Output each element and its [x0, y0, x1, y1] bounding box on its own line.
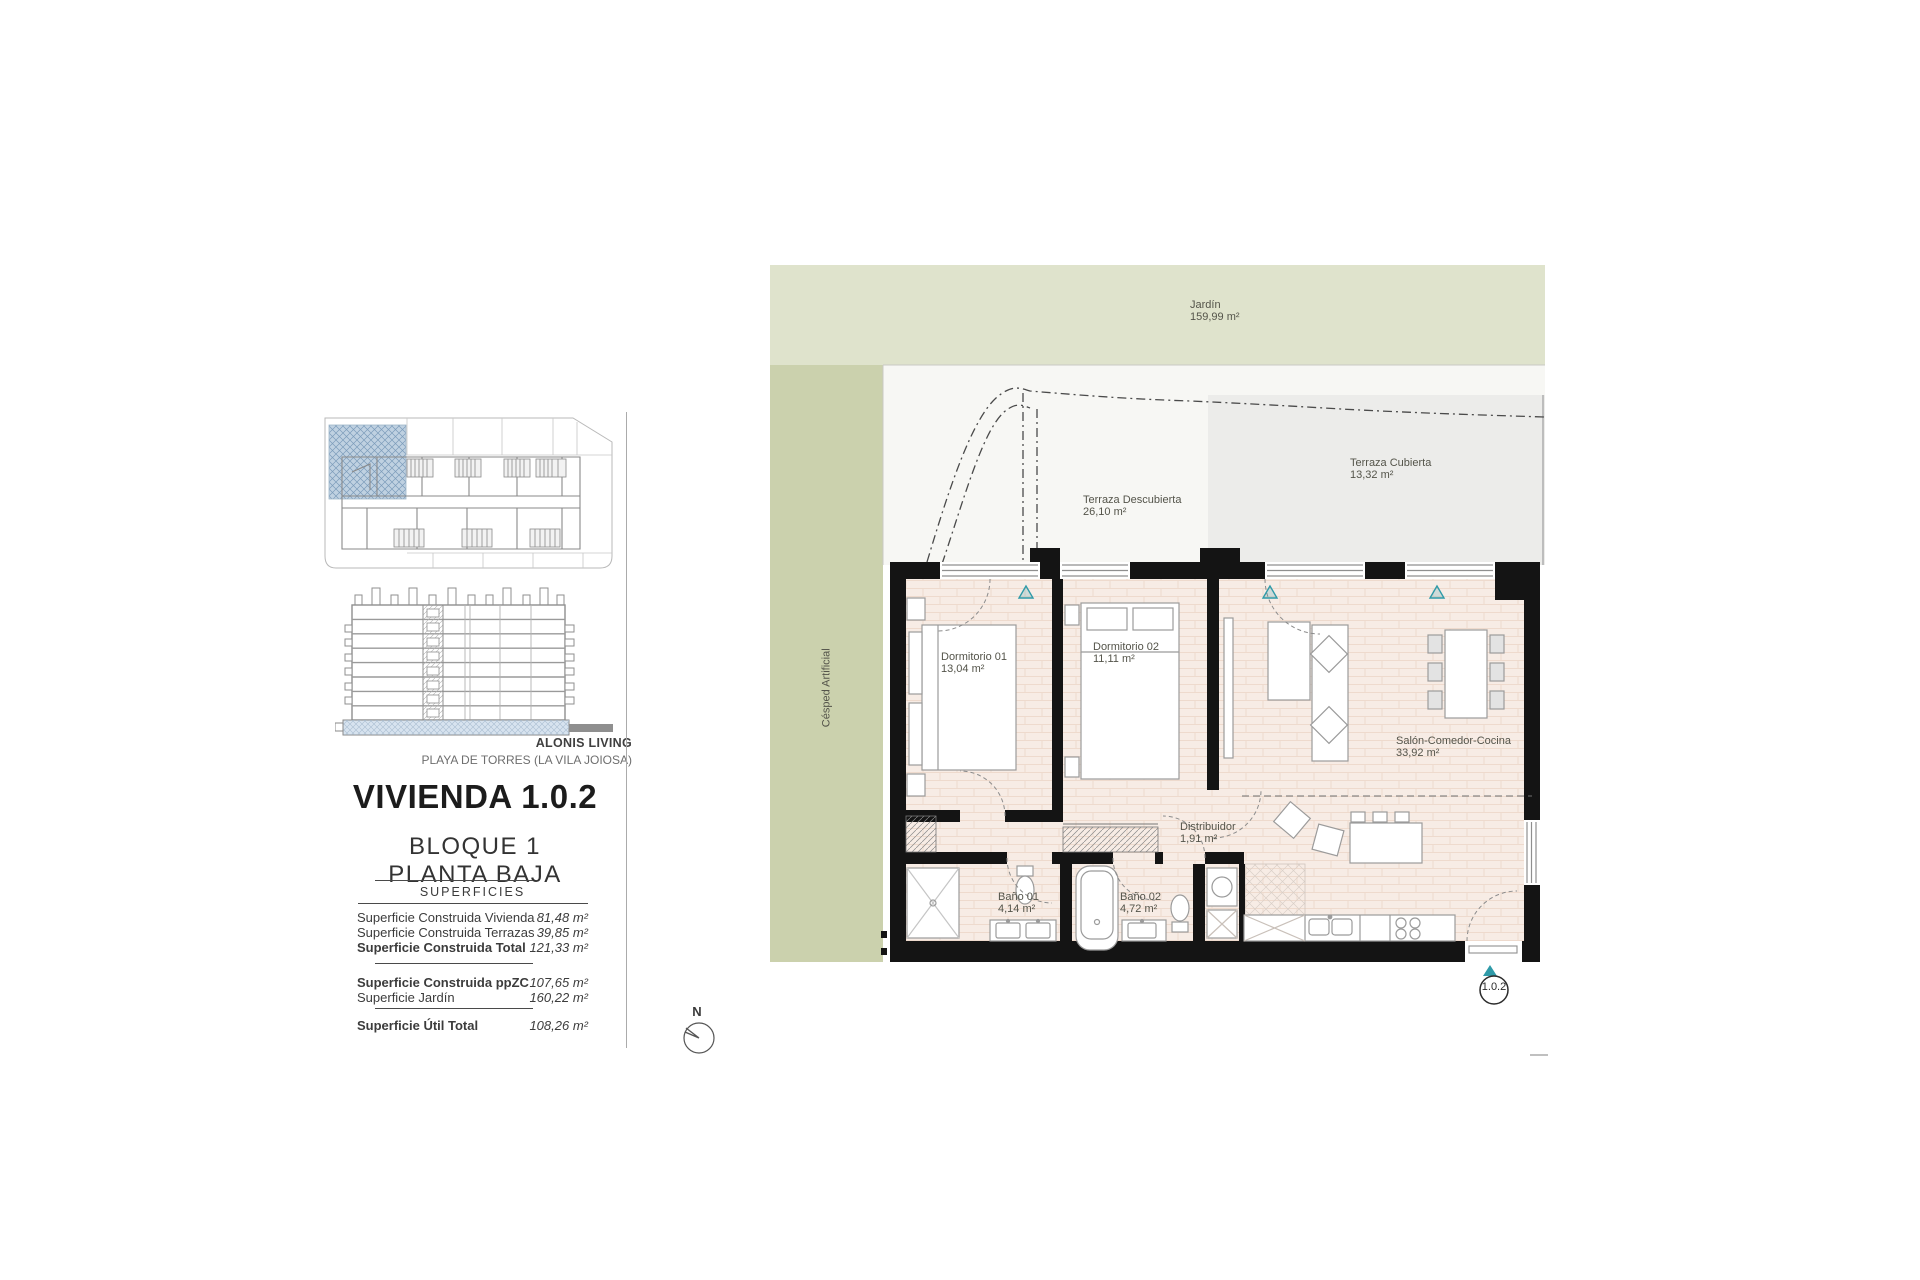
label-dormitorio-02: Dormitorio 02 11,11 m²: [1093, 642, 1159, 665]
label-cesped-artificial: Césped Artificial: [821, 608, 833, 768]
row-label: Superficie Construida ppZC: [357, 975, 529, 990]
table-row: Superficie Construida Total 121,33 m²: [357, 940, 588, 955]
table-rule-divider: [375, 963, 533, 964]
label-terraza-cubierta: Terraza Cubierta 13,32 m²: [1350, 458, 1431, 481]
room-name: Terraza Cubierta: [1350, 457, 1431, 469]
room-name: Dormitorio 01: [941, 651, 1007, 663]
building-elevation: [335, 583, 625, 743]
row-label: Superficie Construida Vivienda: [357, 910, 535, 925]
project-name: ALONIS LIVING: [355, 736, 632, 750]
room-area: 13,32 m²: [1350, 470, 1431, 482]
label-distribuidor: Distribuidor 1,91 m²: [1180, 822, 1236, 845]
row-label: Superficie Construida Terrazas: [357, 925, 535, 940]
compass-label: N: [683, 1004, 711, 1019]
garden-area: [770, 265, 1545, 365]
floor-plan-drawing: [760, 260, 1560, 1080]
room-area: 13,04 m²: [941, 664, 1007, 676]
stair-block: [504, 459, 530, 477]
stair-block: [462, 529, 492, 547]
room-area: 159,99 m²: [1190, 312, 1240, 324]
block-subtitle: BLOQUE 1: [335, 833, 615, 861]
label-dormitorio-01: Dormitorio 01 13,04 m²: [941, 652, 1007, 675]
room-name: Dormitorio 02: [1093, 641, 1159, 653]
room-area: 26,10 m²: [1083, 507, 1181, 519]
page-title: VIVIENDA 1.0.2: [335, 778, 615, 816]
row-value: 108,26 m²: [529, 1018, 588, 1033]
room-area: 11,11 m²: [1093, 654, 1159, 666]
room-name: Salón-Comedor-Cocina: [1396, 735, 1511, 747]
room-name: Distribuidor: [1180, 821, 1236, 833]
table-row: Superficie Útil Total 108,26 m²: [357, 1018, 588, 1033]
room-area: 4,14 m²: [998, 904, 1039, 916]
row-label: Superficie Construida Total: [357, 940, 526, 955]
table-row: Superficie Construida ppZC 107,65 m²: [357, 975, 588, 990]
unit-code-label: 1.0.2: [1474, 981, 1514, 993]
site-key-plan: [322, 412, 632, 574]
panel-divider: [626, 412, 627, 1048]
room-name: Césped Artificial: [820, 648, 832, 727]
row-value: 81,48 m²: [537, 910, 588, 925]
room-name: Baño 01: [998, 891, 1039, 903]
room-area: 1,91 m²: [1180, 834, 1236, 846]
room-area: 4,72 m²: [1120, 904, 1161, 916]
table-rule-divider: [375, 1008, 533, 1009]
table-row: Superficie Construida Vivienda 81,48 m²: [357, 910, 588, 925]
surfaces-heading: SUPERFICIES: [357, 885, 588, 899]
label-terraza-descubierta: Terraza Descubierta 26,10 m²: [1083, 495, 1181, 518]
table-row: Superficie Jardín 160,22 m²: [357, 990, 588, 1005]
project-location: PLAYA DE TORRES (LA VILA JOIOSA): [345, 753, 632, 767]
room-area: 33,92 m²: [1396, 748, 1511, 760]
table-row: Superficie Construida Terrazas 39,85 m²: [357, 925, 588, 940]
label-salon: Salón-Comedor-Cocina 33,92 m²: [1396, 736, 1511, 759]
row-value: 107,65 m²: [529, 975, 588, 990]
room-name: Baño 02: [1120, 891, 1161, 903]
room-name: Jardín: [1190, 299, 1221, 311]
label-bano-02: Baño 02 4,72 m²: [1120, 892, 1161, 915]
row-label: Superficie Útil Total: [357, 1018, 478, 1033]
entrance-marker: [1483, 965, 1497, 976]
label-bano-01: Baño 01 4,14 m²: [998, 892, 1039, 915]
table-rule-top: [375, 880, 533, 881]
ground-extension: [569, 724, 613, 732]
north-compass: [680, 1019, 720, 1059]
stair-block: [455, 459, 481, 477]
label-jardin: Jardín 159,99 m²: [1190, 300, 1240, 323]
row-value: 39,85 m²: [537, 925, 588, 940]
table-rule-heading: [358, 903, 588, 904]
stair-block: [407, 459, 433, 477]
row-value: 160,22 m²: [529, 990, 588, 1005]
row-value: 121,33 m²: [529, 940, 588, 955]
stair-block: [394, 529, 424, 547]
stair-block: [536, 459, 566, 477]
room-name: Terraza Descubierta: [1083, 494, 1181, 506]
plan-sheet: ALONIS LIVING PLAYA DE TORRES (LA VILA J…: [0, 0, 1920, 1280]
row-label: Superficie Jardín: [357, 990, 455, 1005]
stair-block: [530, 529, 560, 547]
